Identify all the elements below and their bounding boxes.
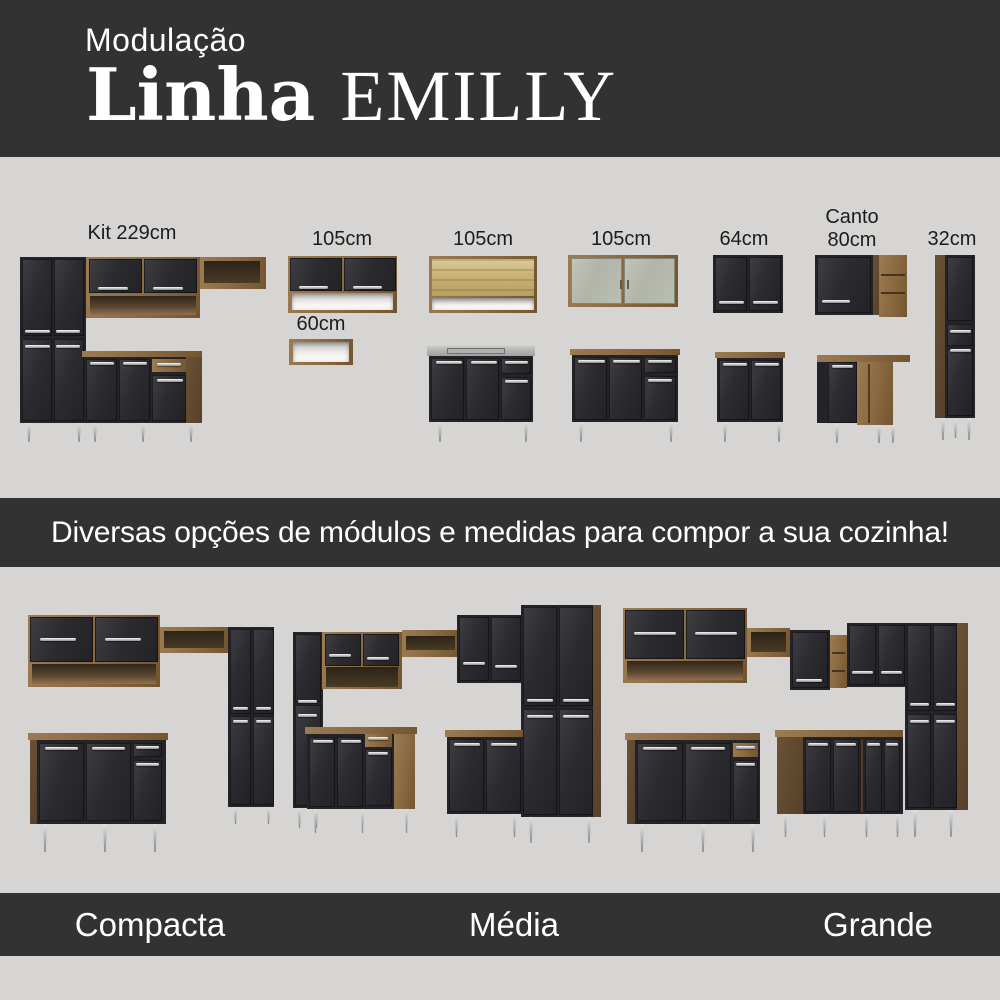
cabinet-body [293, 632, 323, 808]
cabinet-handle [123, 362, 147, 365]
cabinet-handle [471, 361, 497, 364]
cabinet-leg [437, 422, 443, 442]
wood-panel [775, 730, 903, 737]
shelf-opening [627, 661, 743, 680]
page-title-line: Linha [86, 52, 315, 137]
cabinet-leg [940, 418, 946, 440]
wood-panel [288, 256, 397, 313]
plywood-back [432, 259, 534, 296]
glass-handle [627, 280, 629, 289]
cabinet-handle [92, 747, 125, 750]
cabinet-door [309, 737, 335, 807]
cabinet-door [295, 705, 321, 806]
cabinet-handle [56, 345, 80, 348]
cabinet-body [447, 737, 523, 814]
wood-side-panel [957, 623, 968, 810]
cabinet-door [152, 375, 186, 421]
cabinet-door [501, 358, 531, 374]
cabinet-door [144, 259, 197, 293]
cabinet-handle [736, 746, 755, 749]
cabinet-handle [105, 638, 141, 641]
cabinet-body [521, 605, 595, 817]
cabinet-door [365, 749, 392, 806]
module-label-corner-80-line2: 80cm [825, 229, 878, 252]
cabinet-body [817, 362, 828, 423]
wood-panel [322, 632, 402, 689]
cabinet-leg [76, 423, 82, 442]
set-label-grande: Grande [823, 906, 933, 944]
cabinet-door [637, 743, 683, 821]
cabinet-leg [102, 824, 108, 852]
cabinet-handle [563, 715, 589, 718]
cabinet-handle [98, 287, 128, 290]
cabinet-leg [233, 807, 238, 824]
wood-panel [568, 255, 678, 307]
cabinet-door [54, 259, 84, 336]
cabinet-handle [454, 743, 480, 746]
cabinet-handle [881, 671, 902, 674]
cabinet-door [253, 716, 274, 805]
cabinet-handle [368, 752, 388, 755]
cabinet-leg [783, 814, 788, 837]
cabinet-handle [950, 330, 971, 333]
cabinet-handle [527, 715, 553, 718]
cabinet-door [133, 760, 162, 821]
cabinet-leg [523, 422, 529, 442]
cabinet-door [344, 258, 396, 291]
cabinet-handle [527, 699, 553, 702]
cabinet-leg [700, 824, 706, 852]
cabinet-door [230, 629, 251, 714]
glass-door [571, 258, 622, 304]
cabinet-leg [822, 814, 827, 837]
wood-panel [200, 257, 266, 289]
sink-basin [447, 348, 505, 354]
cabinet-handle [867, 743, 880, 746]
cabinet-leg [639, 824, 645, 852]
cabinet-body [84, 357, 202, 423]
cabinet-door [719, 360, 749, 420]
cabinet-handle [634, 632, 676, 635]
cabinet-door [686, 610, 745, 659]
cabinet-leg [313, 809, 318, 833]
cabinet-door [947, 324, 973, 346]
page-title-accent: EMILLY [340, 56, 617, 136]
shelf-opening [164, 631, 224, 648]
cabinet-door [22, 339, 52, 421]
cabinet-body [905, 623, 957, 810]
cabinet-handle [136, 763, 159, 766]
cabinet-leg [776, 422, 782, 442]
module-label-open-105: 105cm [453, 228, 513, 251]
cabinet-door [907, 714, 931, 808]
shelf-line [832, 652, 845, 654]
cabinet-leg [876, 425, 882, 443]
shelf-line [832, 670, 845, 672]
cabinet-door [133, 743, 162, 757]
cabinet-handle [491, 743, 517, 746]
wood-panel [86, 257, 200, 318]
cabinet-door [833, 739, 859, 812]
cabinet-leg [26, 423, 32, 442]
cabinet-door [817, 257, 871, 313]
cabinet-door [733, 760, 758, 821]
cabinet-door [574, 357, 607, 420]
open-niche [432, 298, 534, 310]
glass-handle [620, 280, 622, 289]
cabinet-handle [822, 300, 850, 303]
page-title: Linha EMILLY [86, 56, 617, 135]
cabinet-door [431, 358, 464, 420]
cabinet-leg [188, 423, 194, 442]
cabinet-handle [832, 365, 853, 368]
cabinet-leg [668, 422, 674, 442]
wood-panel [305, 727, 417, 734]
cabinet-door [609, 357, 642, 420]
cabinet-door [751, 360, 781, 420]
cabinet-door [559, 607, 593, 706]
wood-panel [623, 608, 747, 683]
cabinet-handle [56, 330, 80, 333]
cabinet-leg [895, 814, 900, 837]
cabinet-handle [796, 679, 822, 682]
cabinet-door [907, 625, 931, 711]
cabinet-handle [505, 361, 528, 364]
cabinet-door [290, 258, 342, 291]
cabinet-door [491, 617, 521, 681]
cabinet-handle [368, 737, 388, 740]
cabinet-handle [40, 638, 76, 641]
cabinet-handle [90, 362, 114, 365]
wood-panel [817, 355, 910, 362]
cabinet-leg [578, 422, 584, 442]
module-label-glass-105: 105cm [591, 228, 651, 251]
glass-door [624, 258, 675, 304]
shelf-opening [751, 632, 786, 652]
set-label-compacta: Compacta [75, 906, 225, 944]
cabinet-leg [266, 807, 271, 824]
cabinet-handle [463, 662, 485, 665]
cabinet-leg [586, 817, 592, 843]
cabinet-door [523, 709, 557, 815]
cabinet-handle [723, 363, 747, 366]
cabinet-door [22, 259, 52, 336]
cabinet-handle [298, 714, 317, 717]
wood-panel [715, 352, 785, 358]
wood-panel [402, 630, 459, 657]
cabinet-handle [648, 379, 672, 382]
shelf-opening [90, 296, 196, 315]
cabinet-handle [233, 707, 248, 710]
cabinet-handle [910, 720, 929, 723]
cabinet-leg [722, 422, 728, 442]
wood-panel [28, 733, 168, 740]
cabinet-leg [42, 824, 48, 852]
cabinet-door [54, 339, 84, 421]
cabinet-handle [25, 345, 50, 348]
cabinet-handle [836, 743, 856, 746]
cabinet-door [933, 714, 957, 808]
cabinet-door [119, 359, 150, 421]
wood-panel [365, 734, 392, 747]
module-label-corner-80: Canto80cm [825, 206, 878, 252]
cabinet-handle [936, 720, 955, 723]
cabinet-leg [834, 425, 840, 443]
cabinet-leg [948, 810, 954, 837]
cabinet-handle [613, 360, 640, 363]
cabinet-handle [753, 301, 778, 304]
wood-side-panel [873, 255, 879, 315]
cabinet-door [86, 359, 117, 421]
cabinet-handle [136, 746, 159, 749]
shelf-opening [204, 261, 260, 283]
wood-side-panel [627, 740, 635, 824]
cabinet-handle [578, 360, 605, 363]
cabinet-door [337, 737, 363, 807]
cabinet-handle [808, 743, 828, 746]
cabinet-handle [256, 707, 271, 710]
cabinet-body [429, 356, 533, 422]
cabinet-handle [299, 286, 328, 289]
wood-panel [289, 339, 353, 365]
sink-countertop [427, 346, 535, 356]
cabinet-body [572, 355, 678, 422]
cabinet-body [713, 255, 783, 313]
cabinet-door [295, 634, 321, 702]
cabinet-handle [45, 747, 78, 750]
cabinet-handle [695, 632, 737, 635]
cabinet-handle [157, 363, 181, 366]
cabinet-body [717, 358, 783, 422]
cabinet-body [457, 615, 521, 683]
cabinet-handle [25, 330, 50, 333]
module-label-wall-64: 64cm [720, 228, 769, 251]
cabinet-door [947, 349, 973, 416]
cabinet-door [644, 376, 676, 420]
module-label-kit-229: Kit 229cm [88, 222, 177, 245]
cabinet-door [749, 257, 781, 311]
cabinet-handle [886, 743, 898, 746]
cabinet-leg [454, 814, 459, 837]
wood-panel [830, 635, 847, 688]
cabinet-handle [736, 763, 755, 766]
cabinet-door [805, 739, 831, 812]
module-label-niche-60: 60cm [297, 313, 346, 336]
cabinet-leg [912, 810, 918, 837]
cabinet-door [230, 716, 251, 805]
cabinet-door [559, 709, 593, 815]
cabinet-leg [750, 824, 756, 852]
cabinet-body [847, 623, 907, 687]
cabinet-door [39, 743, 84, 821]
cabinet-door [828, 362, 857, 423]
wood-panel [879, 255, 907, 317]
cabinet-handle [233, 720, 248, 723]
wood-panel [747, 628, 790, 657]
shelf-line [881, 274, 905, 276]
cabinet-handle [298, 700, 317, 703]
shelf-opening [32, 664, 156, 684]
cabinet-handle [719, 301, 744, 304]
cabinet-handle [313, 740, 333, 743]
cabinet-handle [256, 720, 271, 723]
wood-panel [82, 351, 202, 357]
cabinet-door [792, 632, 828, 688]
wood-panel [570, 349, 680, 355]
wood-side-panel [186, 357, 202, 423]
cabinet-handle [495, 665, 517, 668]
cabinet-handle [852, 671, 873, 674]
wood-panel [394, 734, 415, 809]
cabinet-door [253, 629, 274, 714]
module-label-tall-32: 32cm [928, 228, 977, 251]
cabinet-door [715, 257, 747, 311]
wood-panel [857, 362, 893, 425]
cabinet-handle [341, 740, 361, 743]
cabinet-handle [936, 703, 955, 706]
cabinet-door [449, 739, 484, 812]
cabinet-body [803, 737, 903, 814]
cabinet-handle [436, 361, 462, 364]
cabinet-door [933, 625, 957, 711]
shelf-line [881, 292, 905, 294]
shelf-opening [326, 667, 398, 687]
cabinet-handle [157, 379, 183, 382]
wood-side-panel [777, 737, 803, 814]
cabinet-handle [367, 657, 389, 660]
cabinet-body [20, 257, 86, 423]
cabinet-door [95, 617, 158, 662]
cabinet-body [30, 740, 166, 824]
cabinet-body [945, 255, 975, 418]
wood-panel [152, 359, 186, 372]
cabinet-body [790, 630, 830, 690]
wood-panel [160, 627, 228, 653]
banner-text: Diversas opções de módulos e medidas par… [0, 498, 1000, 567]
cabinet-body [228, 627, 274, 807]
wood-panel [28, 615, 160, 687]
cabinet-door [849, 625, 876, 685]
cabinet-leg [528, 817, 534, 843]
cabinet-leg [360, 809, 365, 833]
cabinet-door [501, 377, 531, 420]
cabinet-door [486, 739, 521, 812]
cabinet-handle [950, 349, 971, 352]
cabinet-handle [505, 380, 528, 383]
cabinet-body [307, 734, 415, 809]
wood-panel [429, 256, 537, 313]
cabinet-handle [910, 703, 929, 706]
cabinet-door [325, 634, 361, 666]
cabinet-handle [691, 747, 725, 750]
cabinet-handle [643, 747, 677, 750]
cabinet-leg [966, 418, 972, 440]
module-label-corner-80-line1: Canto [825, 206, 878, 229]
cabinet-handle [648, 360, 672, 363]
cabinet-door [363, 634, 399, 666]
cabinet-door [685, 743, 731, 821]
shelf-opening [406, 636, 455, 650]
wood-side-panel [935, 255, 945, 418]
cabinet-handle [755, 363, 779, 366]
wood-panel [625, 733, 760, 740]
panel-divider [868, 364, 870, 423]
cabinet-body [815, 255, 873, 315]
cabinet-leg [512, 814, 517, 837]
open-niche [292, 293, 393, 310]
cabinet-leg [140, 423, 146, 442]
cabinet-door [30, 617, 93, 662]
cabinet-leg [404, 809, 409, 833]
cabinet-door [523, 607, 557, 706]
wood-side-panel [593, 605, 601, 817]
cabinet-handle [329, 654, 351, 657]
wood-panel [445, 730, 523, 737]
set-label-media: Média [469, 906, 559, 944]
cabinet-leg [953, 420, 958, 438]
cabinet-leg [297, 808, 302, 828]
open-niche [293, 342, 349, 362]
cabinet-door [947, 257, 973, 321]
cabinet-door [459, 617, 489, 681]
cabinet-leg [890, 425, 896, 443]
cabinet-handle [563, 699, 589, 702]
poster: Modulação Linha EMILLY Diversas opções d… [0, 0, 1000, 1000]
cabinet-door [644, 357, 676, 373]
cabinet-handle [153, 287, 183, 290]
cabinet-leg [864, 814, 869, 837]
cabinet-leg [152, 824, 158, 852]
cabinet-body [627, 740, 760, 824]
cabinet-door [625, 610, 684, 659]
cabinet-door [884, 739, 900, 812]
cabinet-door [878, 625, 905, 685]
panel-divider [861, 739, 863, 812]
cabinet-handle [353, 286, 382, 289]
cabinet-door [865, 739, 882, 812]
wood-side-panel [30, 740, 37, 824]
wood-panel [733, 743, 758, 757]
cabinet-door [89, 259, 142, 293]
cabinet-door [466, 358, 499, 420]
cabinet-leg [314, 808, 319, 828]
module-label-wall-105: 105cm [312, 228, 372, 251]
cabinet-leg [92, 423, 98, 442]
cabinet-door [86, 743, 131, 821]
